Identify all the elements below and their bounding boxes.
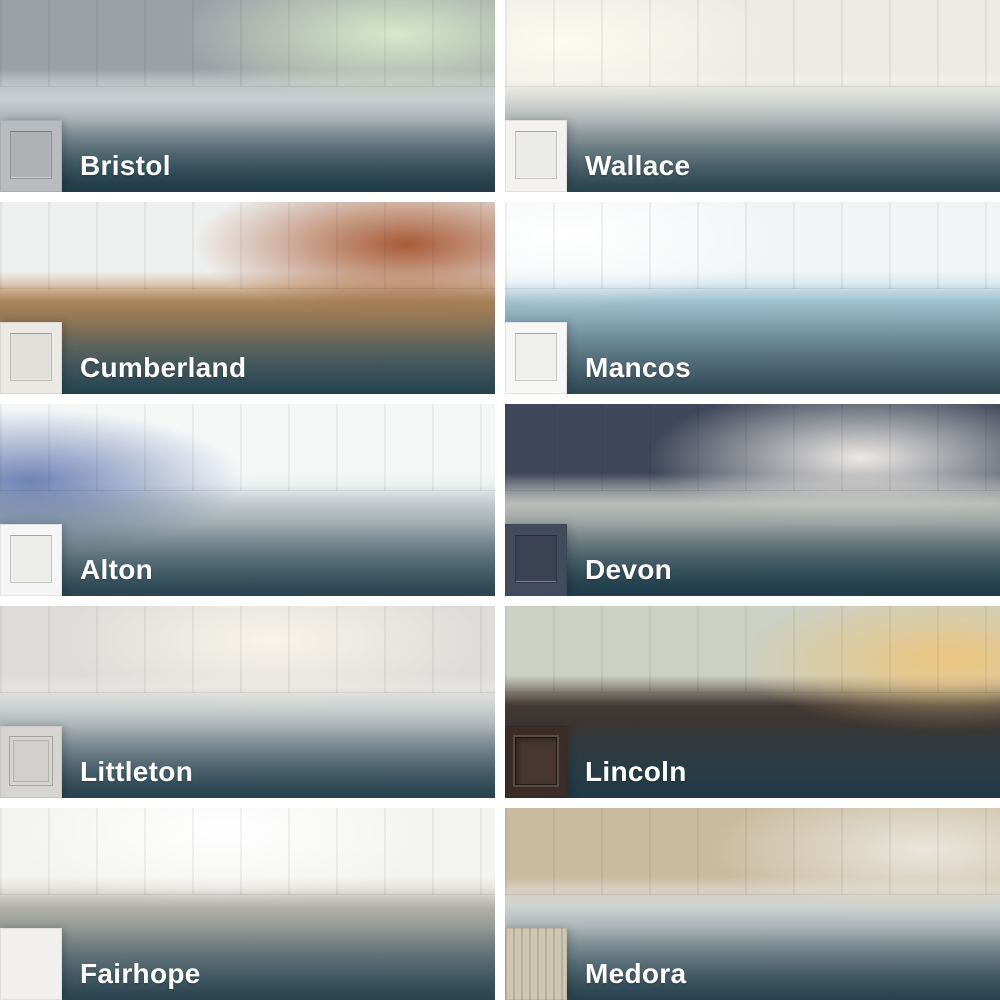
door-swatch	[505, 120, 567, 192]
bottom-gradient-overlay	[505, 808, 1000, 1000]
door-panel	[515, 131, 557, 179]
door-panel	[10, 333, 52, 381]
style-name: Lincoln	[585, 758, 687, 786]
door-panel	[10, 131, 52, 179]
style-tile-medora[interactable]: Medora	[505, 808, 1000, 1000]
style-tile-fairhope[interactable]: Fairhope	[0, 808, 495, 1000]
cabinet-style-grid: Bristol Wallace Cumberland Mancos Alton …	[0, 0, 1000, 1000]
bottom-gradient-overlay	[505, 0, 1000, 192]
door-panel	[515, 333, 557, 381]
bottom-gradient-overlay	[505, 606, 1000, 798]
door-swatch	[505, 726, 567, 798]
door-swatch	[0, 322, 62, 394]
bottom-gradient-overlay	[0, 202, 495, 394]
door-panel	[9, 736, 53, 786]
style-name: Medora	[585, 960, 686, 988]
style-name: Wallace	[585, 152, 690, 180]
style-tile-mancos[interactable]: Mancos	[505, 202, 1000, 394]
door-panel	[513, 735, 559, 787]
style-name: Alton	[80, 556, 153, 584]
door-swatch	[0, 524, 62, 596]
door-swatch	[505, 322, 567, 394]
bottom-gradient-overlay	[505, 202, 1000, 394]
bottom-gradient-overlay	[0, 606, 495, 798]
bottom-gradient-overlay	[505, 404, 1000, 596]
style-tile-wallace[interactable]: Wallace	[505, 0, 1000, 192]
door-swatch	[0, 928, 62, 1000]
style-name: Fairhope	[80, 960, 201, 988]
style-name: Littleton	[80, 758, 193, 786]
door-swatch	[0, 726, 62, 798]
style-name: Bristol	[80, 152, 171, 180]
style-tile-littleton[interactable]: Littleton	[0, 606, 495, 798]
door-panel	[10, 535, 52, 583]
style-tile-lincoln[interactable]: Lincoln	[505, 606, 1000, 798]
style-name: Mancos	[585, 354, 691, 382]
style-tile-bristol[interactable]: Bristol	[0, 0, 495, 192]
style-tile-cumberland[interactable]: Cumberland	[0, 202, 495, 394]
style-name: Devon	[585, 556, 672, 584]
bottom-gradient-overlay	[0, 808, 495, 1000]
door-swatch	[505, 928, 567, 1000]
door-swatch	[0, 120, 62, 192]
door-panel	[515, 535, 557, 583]
style-tile-alton[interactable]: Alton	[0, 404, 495, 596]
style-name: Cumberland	[80, 354, 246, 382]
door-swatch	[505, 524, 567, 596]
bottom-gradient-overlay	[0, 404, 495, 596]
bottom-gradient-overlay	[0, 0, 495, 192]
style-tile-devon[interactable]: Devon	[505, 404, 1000, 596]
